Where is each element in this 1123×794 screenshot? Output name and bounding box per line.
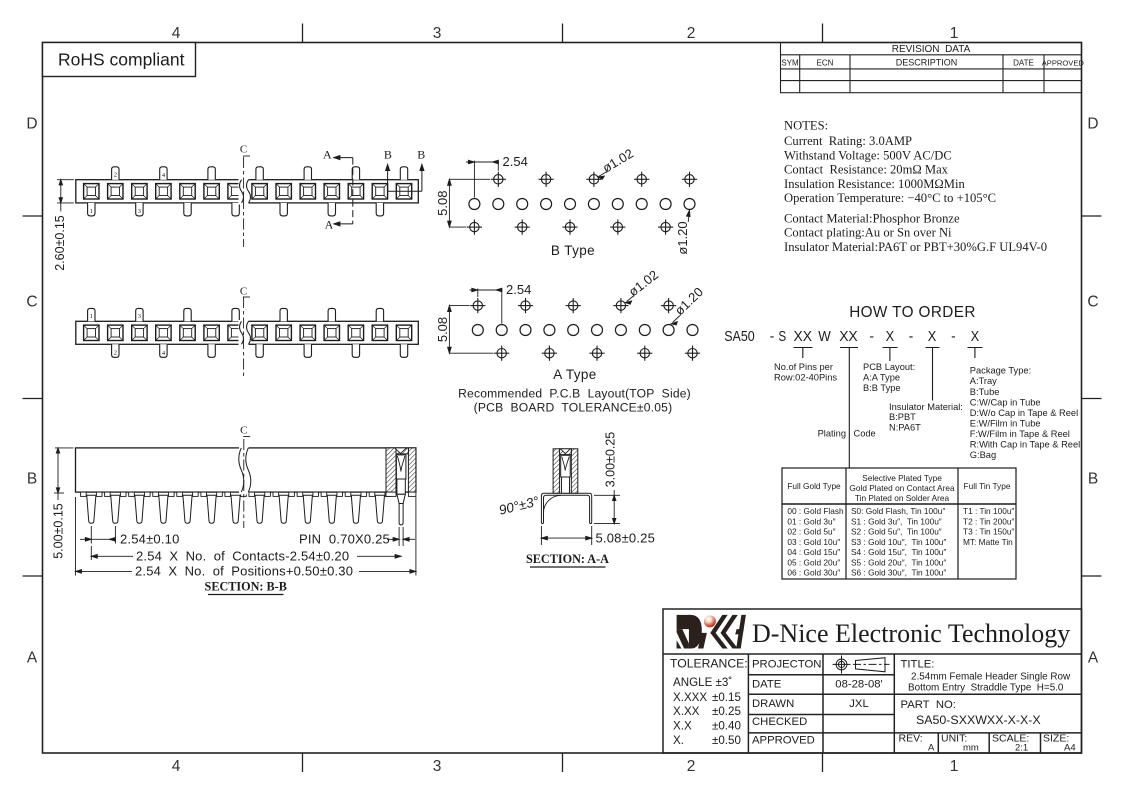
svg-text:No.of Pins per: No.of Pins per xyxy=(774,362,833,372)
svg-text:3: 3 xyxy=(138,208,141,215)
svg-text:Row:02-40Pins: Row:02-40Pins xyxy=(774,373,837,383)
svg-text:T2 : Tin 200u″: T2 : Tin 200u″ xyxy=(963,517,1014,527)
svg-text:01 : Gold 3u″: 01 : Gold 3u″ xyxy=(787,517,835,527)
svg-text:RoHS compliant: RoHS compliant xyxy=(58,50,185,70)
svg-text:4: 4 xyxy=(172,758,181,775)
svg-text:±0.25: ±0.25 xyxy=(712,705,741,718)
svg-text:S1 : Gold 3u″, Tin 100u″: S1 : Gold 3u″, Tin 100u″ xyxy=(851,517,942,527)
svg-text:S0: Gold Flash, Tin 100u″: S0: Gold Flash, Tin 100u″ xyxy=(851,506,945,516)
svg-text:2.54 X No. of Contacts-2.54±0.: 2.54 X No. of Contacts-2.54±0.20 xyxy=(136,548,349,563)
svg-text:X: X xyxy=(971,328,980,345)
svg-text:Insulation Resistance: 1000MΩM: Insulation Resistance: 1000MΩMin xyxy=(784,177,965,191)
svg-text:05 : Gold 20u″: 05 : Gold 20u″ xyxy=(787,558,840,568)
svg-text:Insulator Material:: Insulator Material: xyxy=(889,402,963,412)
svg-text:APPROVED: APPROVED xyxy=(752,735,815,747)
svg-text:PROJECTON: PROJECTON xyxy=(752,659,821,671)
svg-text:2.54±0.10: 2.54±0.10 xyxy=(120,532,180,547)
svg-text:A: A xyxy=(323,148,332,162)
svg-text:2: 2 xyxy=(687,758,696,775)
svg-text:XX: XX xyxy=(794,328,813,345)
svg-text:Recommended P.C.B Layout(TOP: Recommended P.C.B Layout(TOP Side) xyxy=(458,387,691,401)
svg-text:Package Type:: Package Type: xyxy=(970,366,1031,376)
svg-text:B Type: B Type xyxy=(551,243,595,258)
svg-text:REV:: REV: xyxy=(899,733,923,745)
svg-text:JXL: JXL xyxy=(849,698,868,710)
svg-text:2:1: 2:1 xyxy=(1015,743,1028,754)
svg-text:Contact Resistance: 20mΩ Max: Contact Resistance: 20mΩ Max xyxy=(784,163,949,177)
svg-text:A: A xyxy=(1088,650,1099,667)
svg-text:3: 3 xyxy=(433,758,442,775)
svg-text:A: A xyxy=(928,743,935,754)
svg-text:DATE: DATE xyxy=(1013,59,1034,68)
svg-text:5.00±0.15: 5.00±0.15 xyxy=(52,503,66,559)
svg-text:TOLERANCE:: TOLERANCE: xyxy=(670,657,748,671)
svg-text:S: S xyxy=(778,328,786,345)
svg-text:2: 2 xyxy=(687,25,696,42)
svg-text:Current Rating: 3.0AMP: Current Rating: 3.0AMP xyxy=(784,134,912,148)
svg-text:1: 1 xyxy=(90,208,93,215)
svg-text:SYM: SYM xyxy=(781,59,799,68)
svg-text:PIN 0.70X0.25: PIN 0.70X0.25 xyxy=(299,532,390,547)
svg-text:N:PA6T: N:PA6T xyxy=(889,422,921,432)
svg-text:F:W/Film in Tape & Reel: F:W/Film in Tape & Reel xyxy=(970,429,1070,439)
svg-text:2: 2 xyxy=(114,172,117,179)
svg-text:DESCRIPTION: DESCRIPTION xyxy=(896,58,958,68)
svg-text:ECN: ECN xyxy=(817,59,834,68)
svg-text:D: D xyxy=(26,116,37,133)
svg-text:B: B xyxy=(1088,471,1098,488)
svg-text:CHECKED: CHECKED xyxy=(752,716,807,728)
svg-text:04 : Gold 15u″: 04 : Gold 15u″ xyxy=(787,547,840,557)
svg-text:MT: Matte Tin: MT: Matte Tin xyxy=(963,537,1013,547)
svg-text:PCB Layout:: PCB Layout: xyxy=(863,362,915,372)
svg-text:X.XX: X.XX xyxy=(673,705,700,718)
svg-text:-: - xyxy=(909,328,914,345)
svg-text:Tin Plated on Solder Area: Tin Plated on Solder Area xyxy=(855,493,950,503)
svg-text:NOTES:: NOTES: xyxy=(784,119,828,133)
svg-text:03 : Gold 10u″: 03 : Gold 10u″ xyxy=(787,537,840,547)
svg-text:4: 4 xyxy=(172,25,181,42)
svg-text:S4 : Gold 15u″, Tin 100u″: S4 : Gold 15u″, Tin 100u″ xyxy=(851,547,946,557)
svg-text:C: C xyxy=(1087,294,1098,311)
svg-text:2: 2 xyxy=(114,350,117,357)
svg-text:X.XXX: X.XXX xyxy=(673,691,707,704)
svg-text:G:Bag: G:Bag xyxy=(970,450,996,460)
svg-text:REVISION DATA: REVISION DATA xyxy=(892,44,971,55)
svg-text:DRAWN: DRAWN xyxy=(752,698,794,710)
svg-text:SA50: SA50 xyxy=(724,328,755,345)
svg-text:Insulator Material:PA6T or PBT: Insulator Material:PA6T or PBT+30%G.F UL… xyxy=(784,240,1047,254)
svg-text:C:W/Cap in Tube: C:W/Cap in Tube xyxy=(970,397,1041,407)
svg-text:C: C xyxy=(240,286,247,298)
svg-text:S5 : Gold 20u″, Tin 100u″: S5 : Gold 20u″, Tin 100u″ xyxy=(851,558,946,568)
svg-text:E:W/Film in Tube: E:W/Film in Tube xyxy=(970,418,1041,428)
svg-text:A4: A4 xyxy=(1064,743,1076,754)
svg-text:mm: mm xyxy=(963,743,979,754)
svg-text:2.54 X No. of Positions+0.50±0: 2.54 X No. of Positions+0.50±0.30 xyxy=(135,563,353,578)
svg-text:X: X xyxy=(928,328,937,345)
svg-text:Bottom Entry Straddle Type H: Bottom Entry Straddle Type H=5.0 xyxy=(908,683,1064,694)
svg-text:B: B xyxy=(417,148,425,162)
svg-text:B:Tube: B:Tube xyxy=(970,387,1000,397)
svg-text:XX: XX xyxy=(839,328,858,345)
svg-text:-: - xyxy=(770,328,775,345)
svg-text:B:PBT: B:PBT xyxy=(889,412,916,422)
svg-text:Contact Material:Phosphor Bron: Contact Material:Phosphor Bronze xyxy=(784,212,960,226)
svg-text:5.08±0.25: 5.08±0.25 xyxy=(596,530,656,545)
svg-text:2.60±0.15: 2.60±0.15 xyxy=(53,215,67,271)
svg-text:C: C xyxy=(26,294,37,311)
svg-text:Full Gold Type: Full Gold Type xyxy=(787,481,841,491)
svg-text:06 : Gold 30u″: 06 : Gold 30u″ xyxy=(787,568,840,578)
svg-text:SECTION: B-B: SECTION: B-B xyxy=(205,580,287,594)
svg-text:TITLE:: TITLE: xyxy=(901,659,935,671)
svg-text:B: B xyxy=(27,471,37,488)
svg-text:C: C xyxy=(240,144,247,156)
svg-text:08-28-08': 08-28-08' xyxy=(835,679,882,691)
svg-text:X.: X. xyxy=(673,734,684,747)
svg-text:SA50-SXXWXX-X-X-X: SA50-SXXWXX-X-X-X xyxy=(916,713,1041,727)
svg-text:T3 : Tin 150u″: T3 : Tin 150u″ xyxy=(963,527,1014,537)
svg-text:Contact plating:Au or Sn over: Contact plating:Au or Sn over Ni xyxy=(784,226,952,240)
svg-text:S6 : Gold 30u″, Tin 100u″: S6 : Gold 30u″, Tin 100u″ xyxy=(851,568,946,578)
svg-text:Gold Plated on Contact Area: Gold Plated on Contact Area xyxy=(849,483,955,493)
svg-text:PART NO:: PART NO: xyxy=(901,699,956,711)
svg-text:ø1.20: ø1.20 xyxy=(675,221,690,254)
svg-text:W: W xyxy=(818,328,831,345)
svg-text:3: 3 xyxy=(138,313,141,320)
svg-text:-: - xyxy=(951,328,956,345)
svg-text:Operation Temperature: −40°C t: Operation Temperature: −40°C to +105°C xyxy=(784,191,996,205)
svg-text:1: 1 xyxy=(950,25,959,42)
svg-text:2.54mm Female Header Single Ro: 2.54mm Female Header Single Row xyxy=(911,672,1071,683)
svg-text:Full Tin Type: Full Tin Type xyxy=(964,481,1011,491)
svg-text:±0.50: ±0.50 xyxy=(712,734,741,747)
svg-text:3: 3 xyxy=(433,25,442,42)
svg-text:B:B Type: B:B Type xyxy=(863,383,901,393)
svg-text:SECTION: A-A: SECTION: A-A xyxy=(526,552,609,566)
svg-text:Withstand Voltage: 500V AC/DC: Withstand Voltage: 500V AC/DC xyxy=(784,148,952,162)
svg-text:00 : Gold Flash: 00 : Gold Flash xyxy=(787,506,844,516)
svg-text:S3 : Gold 10u″, Tin 100u″: S3 : Gold 10u″, Tin 100u″ xyxy=(851,537,946,547)
svg-text:1: 1 xyxy=(90,313,93,320)
svg-text:A Type: A Type xyxy=(553,367,596,382)
svg-text:X.X: X.X xyxy=(673,720,692,733)
svg-text:HOW TO ORDER: HOW TO ORDER xyxy=(849,304,976,321)
svg-text:5.08: 5.08 xyxy=(435,191,450,216)
svg-text:T1 : Tin 100u″: T1 : Tin 100u″ xyxy=(963,506,1014,516)
svg-text:B: B xyxy=(384,148,392,162)
svg-text:Code: Code xyxy=(854,428,876,438)
svg-text:D:W/o Cap in Tape & Reel: D:W/o Cap in Tape & Reel xyxy=(970,408,1078,418)
svg-text:Selective Plated Type: Selective Plated Type xyxy=(862,473,942,483)
svg-text:1: 1 xyxy=(950,758,959,775)
svg-text:DATE: DATE xyxy=(752,679,782,691)
svg-text:A: A xyxy=(27,650,38,667)
svg-text:(PCB BOARD TOLERANCE±0.05): (PCB BOARD TOLERANCE±0.05) xyxy=(474,401,673,415)
svg-text:C: C xyxy=(240,425,247,437)
svg-text:-: - xyxy=(870,328,875,345)
svg-text:A:A Type: A:A Type xyxy=(863,373,900,383)
svg-text:R:With Cap in Tape & Reel: R:With Cap in Tape & Reel xyxy=(970,439,1080,449)
svg-text:±0.15: ±0.15 xyxy=(712,691,741,704)
svg-text:±0.40: ±0.40 xyxy=(712,720,741,733)
svg-text:APPROVED: APPROVED xyxy=(1042,59,1085,68)
svg-text:Plating: Plating xyxy=(818,428,846,438)
svg-text:D-Nice Electronic Technology: D-Nice Electronic Technology xyxy=(752,619,1070,648)
svg-text:5.08: 5.08 xyxy=(435,317,450,342)
svg-text:A:Tray: A:Tray xyxy=(970,376,997,386)
svg-text:S2 : Gold 5u″, Tin 100u″: S2 : Gold 5u″, Tin 100u″ xyxy=(851,527,942,537)
svg-text:A: A xyxy=(325,218,334,232)
svg-text:2.54: 2.54 xyxy=(506,282,531,297)
svg-text:D: D xyxy=(1087,116,1098,133)
svg-text:X: X xyxy=(886,328,895,345)
svg-text:02 : Gold 5u″: 02 : Gold 5u″ xyxy=(787,527,835,537)
svg-text:3.00±0.25: 3.00±0.25 xyxy=(604,432,618,488)
svg-text:2.54: 2.54 xyxy=(503,154,528,169)
svg-text:ANGLE ±3˚: ANGLE ±3˚ xyxy=(673,676,732,689)
